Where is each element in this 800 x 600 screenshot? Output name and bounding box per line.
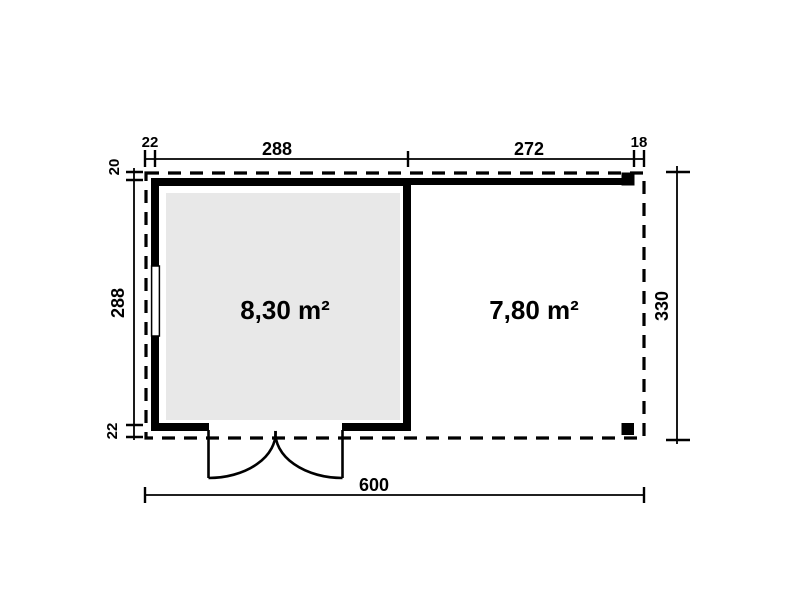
dim-label-total-width: 600	[359, 475, 389, 495]
dim-label-top-canopy-width: 272	[514, 139, 544, 159]
wall-bottom-left	[151, 423, 209, 431]
corner-post-top-right	[622, 173, 635, 186]
dimension-right: 330	[652, 166, 690, 444]
room-area-label-cabin: 8,30 m²	[240, 295, 330, 325]
dim-label-left-cabin-depth: 288	[108, 288, 128, 318]
door-swing-right	[275, 431, 342, 478]
dim-label-top-overhang-left: 22	[142, 134, 159, 151]
corner-post-bottom-right	[622, 423, 635, 435]
dim-label-left-overhang-bottom: 22	[104, 423, 121, 440]
dimension-top: 22 288 272 18	[142, 134, 648, 167]
dim-label-top-cabin-width: 288	[262, 139, 292, 159]
dim-label-top-overhang-right: 18	[631, 134, 648, 151]
wall-top	[151, 178, 411, 186]
floor-plan-diagram: 22 288 272 18 20 288 22 330	[0, 0, 800, 600]
room-area-label-canopy: 7,80 m²	[489, 295, 579, 325]
dimension-bottom: 600	[145, 475, 644, 503]
dimension-left: 20 288 22	[104, 159, 143, 440]
wall-right	[403, 178, 411, 431]
front-beam	[411, 178, 623, 185]
floor-plan-canvas: 22 288 272 18 20 288 22 330	[0, 0, 800, 600]
wall-bottom-right	[342, 423, 411, 431]
dim-label-total-depth: 330	[652, 291, 672, 321]
dim-label-left-overhang-top: 20	[106, 159, 123, 176]
window	[152, 266, 160, 336]
